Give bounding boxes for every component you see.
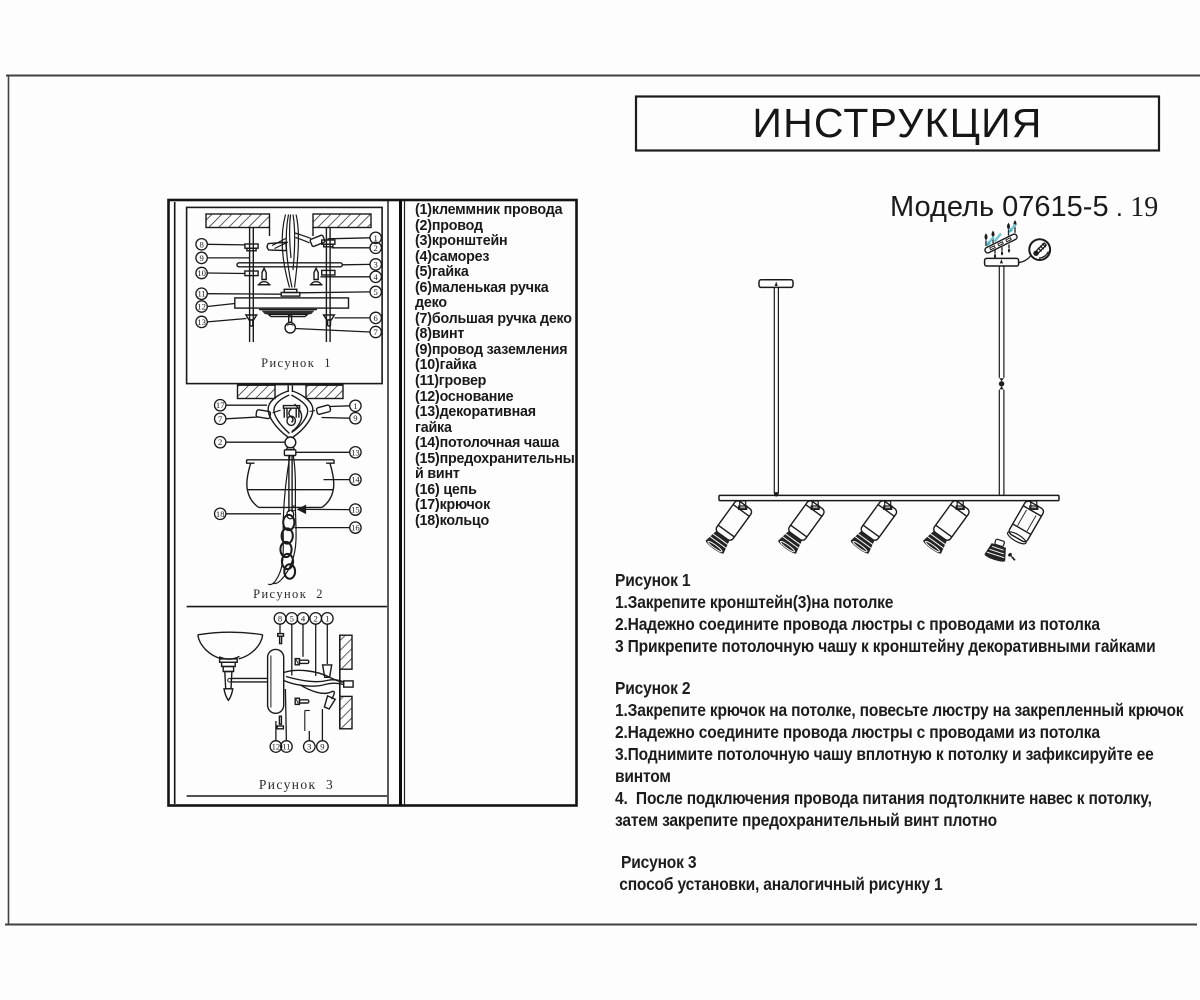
svg-text:13: 13 [197, 317, 206, 327]
svg-text:4: 4 [374, 272, 379, 282]
svg-text:17: 17 [216, 400, 225, 410]
svg-text:7: 7 [218, 414, 223, 424]
svg-text:6: 6 [374, 313, 379, 323]
svg-text:10: 10 [197, 268, 206, 278]
svg-text:11: 11 [197, 289, 205, 299]
svg-text:9: 9 [320, 742, 324, 752]
svg-text:14: 14 [351, 475, 360, 485]
svg-text:8: 8 [278, 613, 282, 623]
svg-text:3: 3 [307, 742, 311, 752]
svg-text:8: 8 [199, 239, 203, 249]
svg-text:13: 13 [351, 447, 360, 457]
svg-text:12: 12 [272, 742, 281, 752]
svg-text:5: 5 [374, 287, 378, 297]
svg-text:9: 9 [199, 253, 203, 263]
svg-text:1: 1 [353, 401, 357, 411]
svg-text:7: 7 [374, 327, 379, 337]
svg-text:9: 9 [353, 413, 357, 423]
svg-text:11: 11 [282, 742, 290, 752]
svg-text:16: 16 [351, 523, 360, 533]
svg-text:4: 4 [301, 613, 306, 623]
svg-text:12: 12 [197, 302, 206, 312]
svg-text:2: 2 [374, 243, 378, 253]
svg-text:5: 5 [290, 613, 294, 623]
svg-text:15: 15 [351, 505, 360, 515]
svg-text:18: 18 [216, 509, 225, 519]
svg-text:1: 1 [325, 613, 329, 623]
svg-text:2: 2 [314, 613, 318, 623]
svg-text:1: 1 [374, 233, 378, 243]
svg-text:2: 2 [218, 437, 222, 447]
svg-text:3: 3 [374, 259, 378, 269]
